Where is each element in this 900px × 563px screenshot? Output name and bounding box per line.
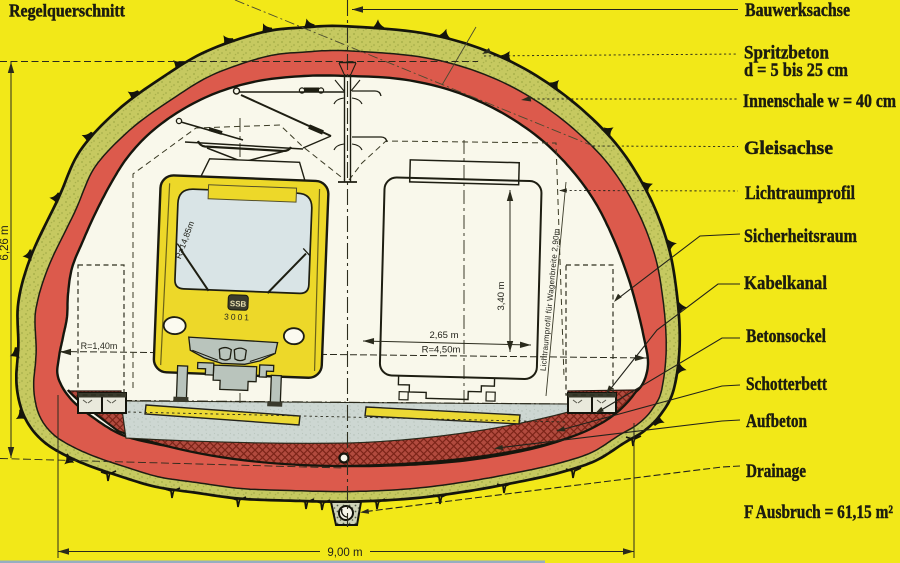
svg-text:Aufbeton: Aufbeton	[746, 411, 807, 432]
svg-text:Gleisachse: Gleisachse	[744, 138, 833, 159]
svg-text:9,00 m: 9,00 m	[327, 547, 362, 559]
svg-text:Schotterbett: Schotterbett	[746, 374, 828, 395]
svg-text:R=1,40m: R=1,40m	[81, 341, 118, 351]
svg-text:Drainage: Drainage	[746, 461, 806, 482]
svg-text:2,65 m: 2,65 m	[429, 330, 458, 341]
svg-text:Kabelkanal: Kabelkanal	[744, 273, 827, 294]
svg-text:R=4,50m: R=4,50m	[422, 345, 461, 356]
svg-text:6,26 m: 6,26 m	[0, 225, 11, 260]
svg-text:Bauwerksachse: Bauwerksachse	[745, 0, 850, 21]
svg-text:3001: 3001	[224, 311, 251, 322]
svg-text:Lichtraumprofil: Lichtraumprofil	[745, 183, 855, 204]
svg-text:Innenschale w = 40 cm: Innenschale w = 40 cm	[743, 91, 896, 112]
svg-text:3,40 m: 3,40 m	[496, 281, 507, 310]
svg-text:Regelquerschnitt: Regelquerschnitt	[9, 1, 125, 21]
svg-text:Sicherheitsraum: Sicherheitsraum	[744, 226, 857, 247]
svg-text:d = 5 bis 25 cm: d = 5 bis 25 cm	[744, 60, 848, 81]
svg-text:SSB: SSB	[230, 299, 247, 309]
svg-text:Betonsockel: Betonsockel	[746, 326, 826, 347]
svg-text:F Ausbruch = 61,15 m²: F Ausbruch = 61,15 m²	[744, 502, 893, 523]
